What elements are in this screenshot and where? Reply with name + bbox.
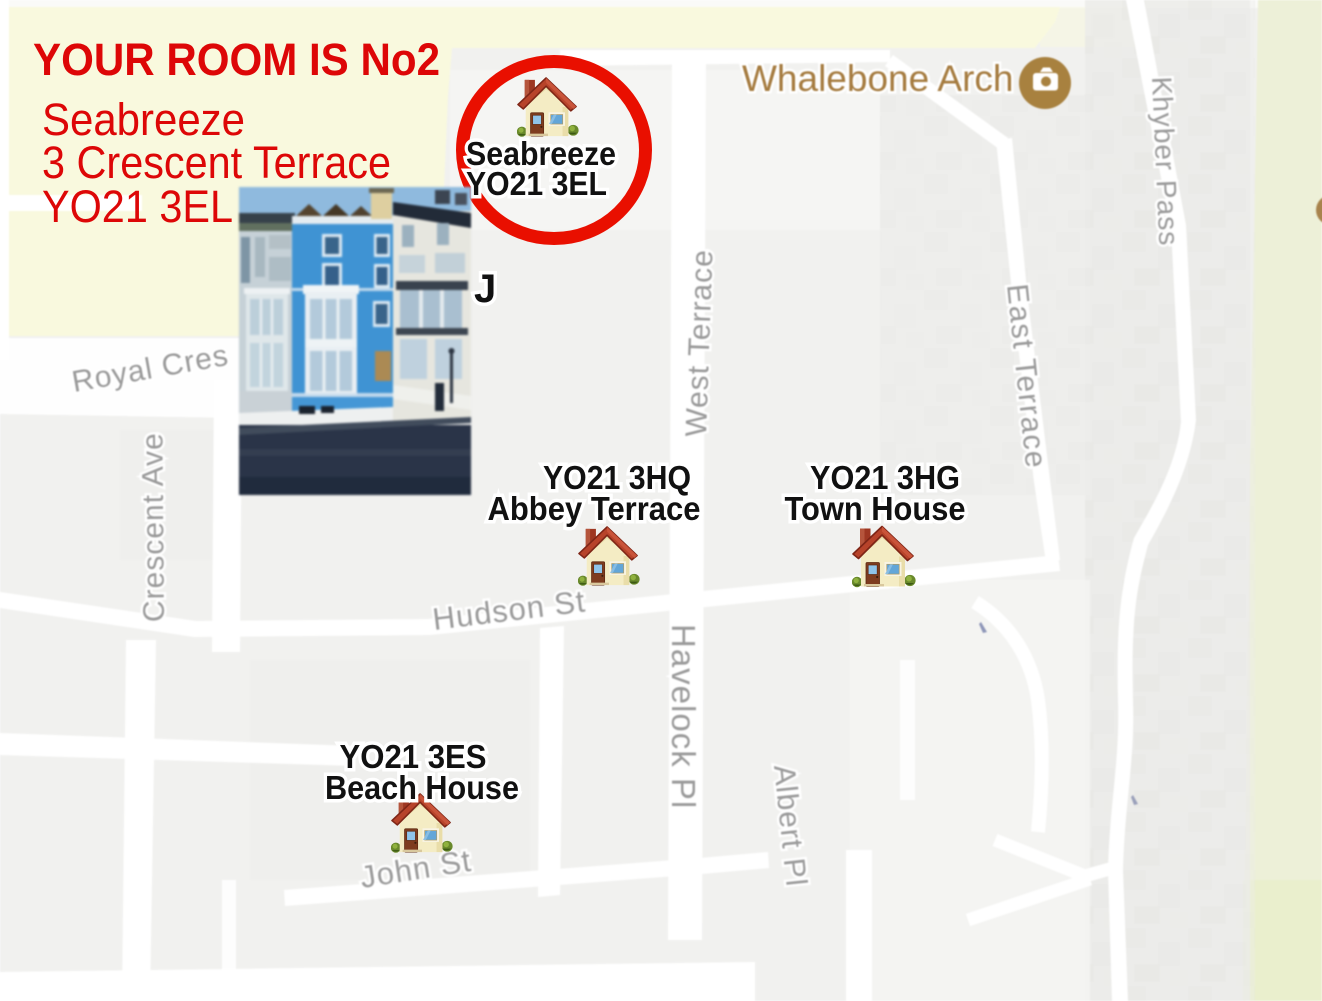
svg-text:YOUR ROOM IS No2: YOUR ROOM IS No2: [33, 34, 440, 85]
svg-text:Havelock Pl: Havelock Pl: [665, 624, 702, 809]
svg-text:Beach House: Beach House: [325, 769, 519, 806]
svg-text:YO21 3EL: YO21 3EL: [466, 165, 607, 202]
svg-text:Whalebone Arch: Whalebone Arch: [742, 58, 1014, 99]
svg-text:Crescent Ave: Crescent Ave: [136, 432, 171, 622]
svg-text:Town House: Town House: [785, 490, 966, 527]
svg-text:YO21 3EL: YO21 3EL: [42, 181, 233, 232]
svg-text:West Terrace: West Terrace: [680, 249, 720, 438]
svg-text:J: J: [474, 267, 496, 311]
svg-text:Abbey Terrace: Abbey Terrace: [488, 490, 701, 527]
